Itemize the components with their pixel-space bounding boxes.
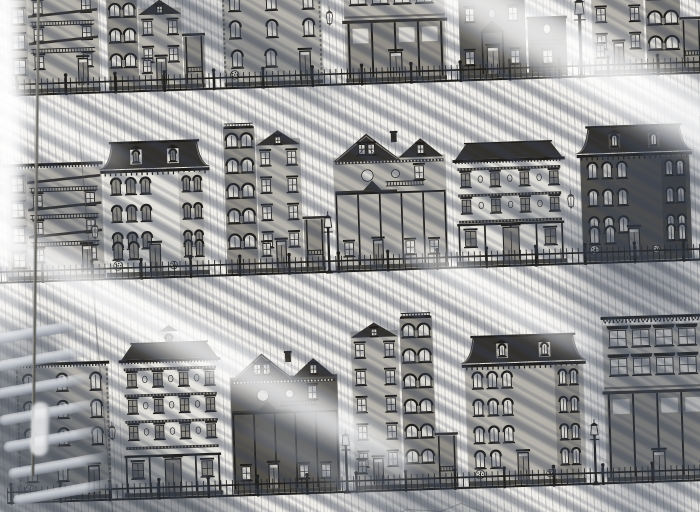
blind-slat [0, 397, 104, 426]
house-illustration-gable [332, 129, 449, 270]
window-edge-glow [0, 0, 24, 388]
house-illustration-gable [229, 349, 341, 494]
house-illustration-trimmed [452, 140, 568, 267]
lantern-ornament-illustration [326, 7, 334, 26]
blind-slat [12, 477, 118, 506]
house-illustration-storefront [600, 313, 700, 482]
house-illustration-mansard [98, 139, 214, 279]
house-row [0, 107, 700, 284]
house-row [3, 0, 700, 97]
lantern-ornament-illustration [567, 190, 575, 209]
house-illustration-towertall [223, 120, 328, 274]
wallpaper-photograph [0, 0, 700, 512]
house-illustration-mansard [460, 332, 591, 487]
street-lamp-illustration [589, 419, 601, 485]
house-illustration-mansard [575, 123, 697, 263]
blind-slat [3, 424, 109, 453]
house-illustration-towertall [350, 311, 460, 490]
blind-cord-pull [30, 402, 50, 457]
blind-slat [7, 451, 113, 480]
